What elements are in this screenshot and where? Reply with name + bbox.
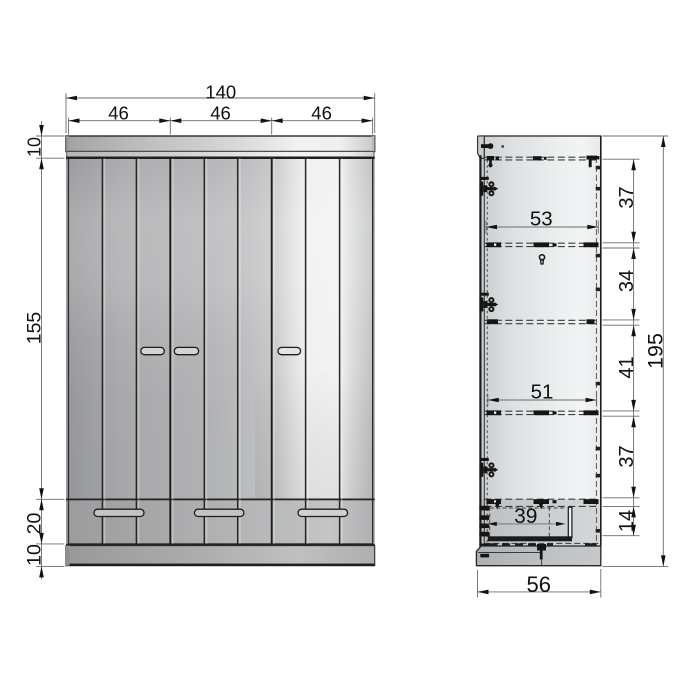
svg-text:10: 10 (25, 137, 45, 157)
svg-text:14: 14 (616, 510, 638, 532)
svg-text:46: 46 (311, 103, 332, 124)
svg-text:155: 155 (24, 312, 46, 345)
svg-text:34: 34 (616, 270, 638, 292)
svg-text:46: 46 (108, 103, 129, 124)
svg-text:10: 10 (24, 544, 46, 566)
svg-text:51: 51 (531, 381, 554, 404)
svg-text:39: 39 (514, 505, 537, 528)
svg-text:195: 195 (643, 333, 667, 369)
svg-text:56: 56 (527, 572, 551, 597)
svg-text:41: 41 (616, 356, 638, 378)
svg-text:46: 46 (210, 103, 231, 124)
svg-text:53: 53 (530, 208, 553, 231)
svg-text:140: 140 (205, 81, 236, 102)
svg-text:37: 37 (616, 445, 638, 467)
svg-text:20: 20 (24, 513, 46, 535)
svg-text:37: 37 (616, 186, 638, 208)
